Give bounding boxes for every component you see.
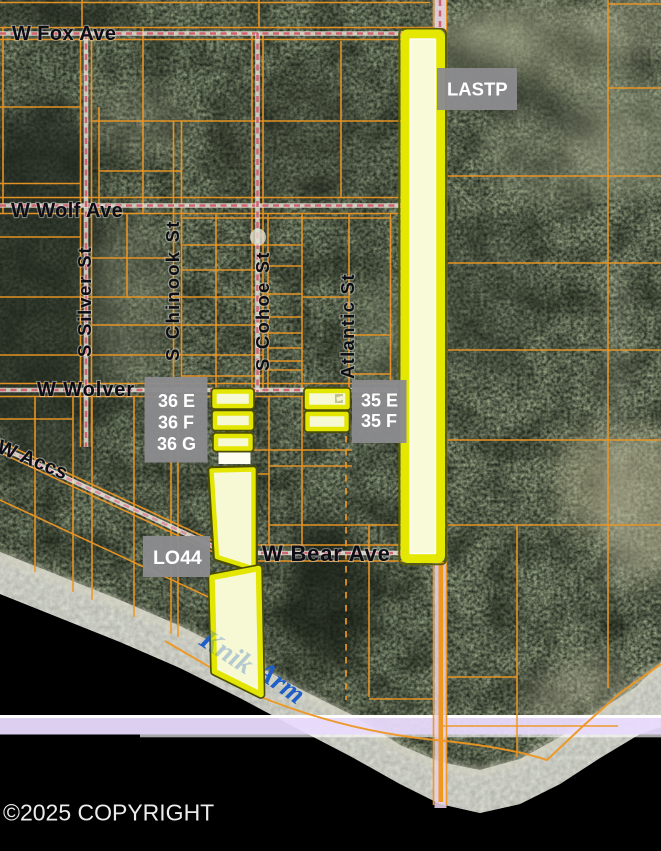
svg-text:W Wolver: W Wolver [37, 379, 135, 401]
svg-text:S Chinook St: S Chinook St [162, 219, 183, 361]
svg-text:W Bear Ave: W Bear Ave [262, 541, 391, 566]
svg-text:S Silver St: S Silver St [74, 246, 95, 357]
svg-text:35 E: 35 E [361, 391, 398, 411]
svg-text:36 F: 36 F [158, 413, 194, 433]
svg-text:LASTP: LASTP [447, 79, 508, 100]
svg-text:W Wolf Ave: W Wolf Ave [11, 200, 123, 222]
svg-text:W Fox Ave: W Fox Ave [12, 23, 116, 45]
svg-text:S Cohoe St: S Cohoe St [252, 250, 273, 371]
svg-text:©2025 COPYRIGHT: ©2025 COPYRIGHT [3, 800, 214, 826]
svg-text:35 F: 35 F [361, 411, 397, 431]
svg-text:LO44: LO44 [153, 547, 202, 569]
svg-text:36 E: 36 E [158, 391, 195, 411]
svg-text:Atlantic St: Atlantic St [337, 273, 358, 379]
svg-text:36 G: 36 G [157, 434, 196, 454]
